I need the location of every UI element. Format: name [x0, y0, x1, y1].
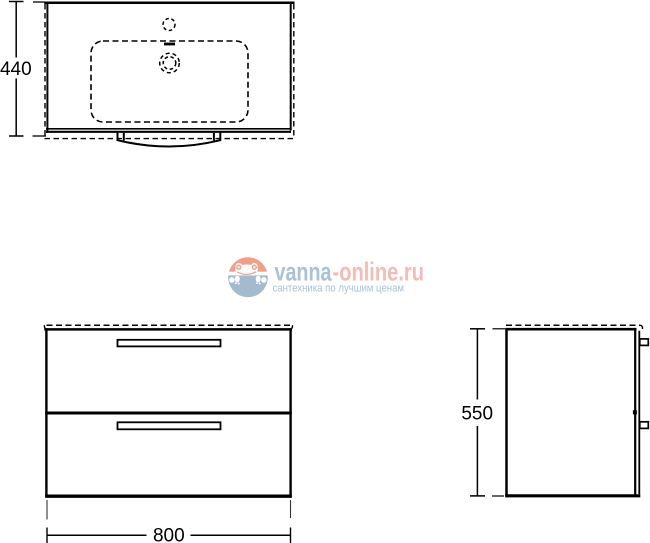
svg-text:440: 440	[0, 59, 32, 80]
svg-text:550: 550	[461, 403, 493, 424]
svg-text:сантехника по лучшим ценам: сантехника по лучшим ценам	[273, 283, 405, 295]
svg-text:800: 800	[153, 526, 185, 543]
